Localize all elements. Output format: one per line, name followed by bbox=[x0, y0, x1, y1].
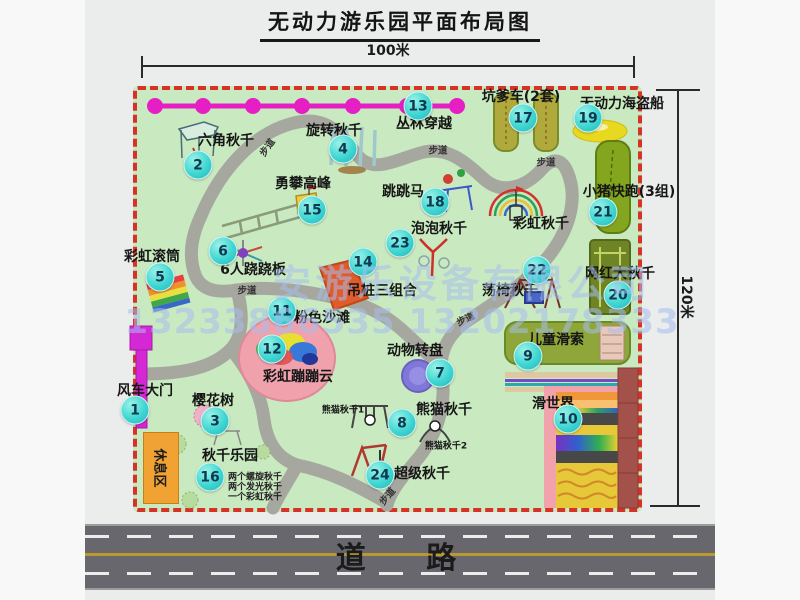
swing-park-note-2: 两个发光秋千 bbox=[228, 484, 282, 493]
attraction-bubble-7: 7 bbox=[426, 359, 455, 388]
walkway-label: 步道 bbox=[237, 286, 256, 296]
swing-park-note-3: 一个彩虹秋千 bbox=[228, 494, 282, 503]
attraction-label-4: 旋转秋千 bbox=[306, 124, 362, 138]
attraction-label-14: 吊桩三组合 bbox=[347, 284, 417, 298]
attraction-bubble-16: 16 bbox=[196, 463, 225, 492]
page-title: 无动力游乐园平面布局图 bbox=[260, 6, 540, 42]
panda-swing-2-label: 熊猫秋千2 bbox=[425, 443, 467, 452]
attraction-bubble-8: 8 bbox=[388, 409, 417, 438]
attraction-label-20: 网红大秋千 bbox=[585, 267, 655, 281]
attraction-bubble-11: 11 bbox=[268, 297, 297, 326]
rainbow-swing-label: 彩虹秋千 bbox=[513, 217, 569, 231]
attraction-bubble-3: 3 bbox=[201, 407, 230, 436]
attraction-label-18: 跳跳马 bbox=[382, 185, 424, 199]
attraction-bubble-14: 14 bbox=[349, 248, 378, 277]
attraction-label-24: 超级秋千 bbox=[394, 467, 450, 481]
attraction-label-22: 荡椅秋千 bbox=[482, 284, 538, 298]
width-dimension-label: 100米 bbox=[366, 40, 409, 60]
attraction-bubble-21: 21 bbox=[589, 198, 618, 227]
attraction-bubble-18: 18 bbox=[421, 188, 450, 217]
attraction-label-23: 泡泡秋千 bbox=[411, 222, 467, 236]
attraction-label-7: 动物转盘 bbox=[387, 344, 443, 358]
rest-area: 休息区 bbox=[143, 432, 179, 504]
height-dimension-label: 120米 bbox=[677, 275, 697, 318]
attraction-label-6: 6人跷跷板 bbox=[220, 263, 286, 277]
attraction-bubble-23: 23 bbox=[386, 229, 415, 258]
attraction-bubble-5: 5 bbox=[146, 263, 175, 292]
attraction-label-21: 小猪快跑(3组) bbox=[583, 185, 676, 199]
attraction-bubble-12: 12 bbox=[258, 335, 287, 364]
attraction-bubble-17: 17 bbox=[509, 104, 538, 133]
attraction-bubble-15: 15 bbox=[298, 196, 327, 225]
attraction-label-1: 风车大门 bbox=[117, 384, 173, 398]
attraction-label-11: 粉色沙滩 bbox=[294, 311, 350, 325]
attraction-bubble-19: 19 bbox=[574, 104, 603, 133]
attraction-label-15: 勇攀高峰 bbox=[275, 177, 331, 191]
attraction-bubble-10: 10 bbox=[554, 405, 583, 434]
walkway-label: 步道 bbox=[428, 146, 447, 156]
attraction-bubble-4: 4 bbox=[329, 135, 358, 164]
attraction-bubble-20: 20 bbox=[604, 281, 633, 310]
road-label: 道 路 bbox=[336, 533, 464, 577]
attraction-label-8: 熊猫秋千 bbox=[416, 403, 472, 417]
attraction-bubble-1: 1 bbox=[121, 396, 150, 425]
attraction-bubble-24: 24 bbox=[366, 461, 395, 490]
attraction-label-12: 彩虹蹦蹦云 bbox=[263, 370, 333, 384]
walkway-label: 步道 bbox=[536, 158, 555, 168]
panda-swing-1-label: 熊猫秋千1 bbox=[322, 407, 364, 416]
attraction-bubble-9: 9 bbox=[514, 342, 543, 371]
attraction-bubble-22: 22 bbox=[523, 256, 552, 285]
attraction-label-5: 彩虹滚筒 bbox=[124, 250, 180, 264]
title-bar: 无动力游乐园平面布局图 bbox=[85, 6, 715, 42]
attraction-label-16: 秋千乐园 bbox=[202, 449, 258, 463]
attraction-bubble-2: 2 bbox=[184, 151, 213, 180]
screenshot-root: { "title": "无动力游乐园平面布局图", "dimensions": … bbox=[0, 0, 800, 600]
attraction-bubble-13: 13 bbox=[404, 92, 433, 121]
attraction-label-2: 六角秋千 bbox=[198, 134, 254, 148]
attraction-label-17: 坑爹车(2套) bbox=[482, 90, 561, 104]
rest-area-label: 休息区 bbox=[152, 448, 171, 487]
swing-park-note-1: 两个螺旋秋千 bbox=[228, 474, 282, 483]
road: 道 路 bbox=[85, 524, 715, 590]
attraction-bubble-6: 6 bbox=[209, 237, 238, 266]
